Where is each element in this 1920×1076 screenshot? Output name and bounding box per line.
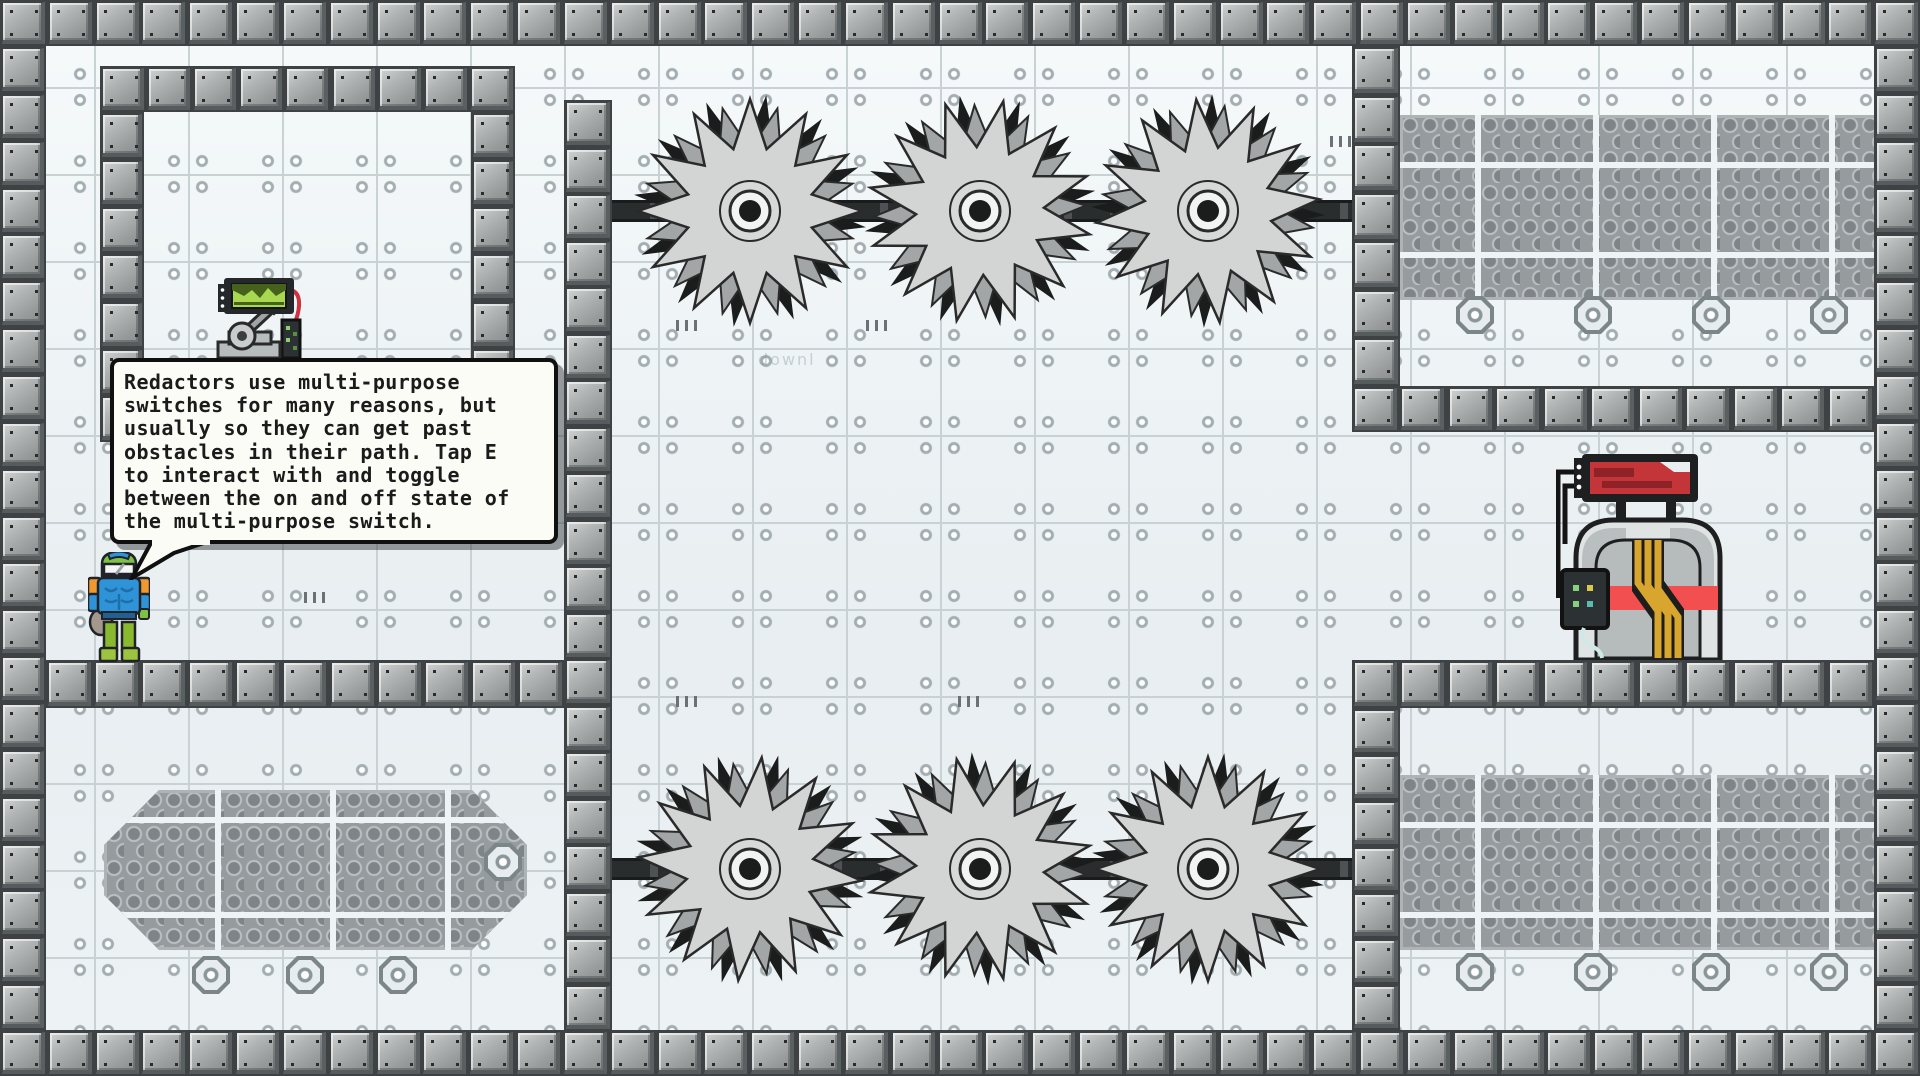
wall-block	[2, 798, 44, 841]
vent-grid-line	[1400, 822, 1920, 828]
wall-block	[845, 1032, 888, 1074]
wall-block	[1547, 1032, 1590, 1074]
wall-block	[566, 102, 610, 145]
wall-block	[240, 68, 282, 110]
wall-block	[473, 114, 513, 157]
wall-block	[1876, 329, 1918, 372]
wall-block	[333, 68, 375, 110]
wall-block	[2, 1032, 45, 1074]
wall-block	[2, 423, 44, 466]
wall-block	[1496, 388, 1539, 430]
wall-block	[1401, 388, 1444, 430]
wall-block	[517, 1032, 560, 1074]
wall-block	[1591, 388, 1634, 430]
vent-grid-line	[104, 912, 527, 918]
wall-block	[148, 68, 190, 110]
wall-block	[96, 2, 139, 44]
wall-block	[1876, 48, 1918, 91]
wall-block	[102, 114, 142, 157]
wall-block	[471, 68, 513, 110]
wall-block	[470, 1032, 513, 1074]
wall-segment	[0, 0, 1920, 46]
wall-block	[1875, 1032, 1918, 1074]
wall-block	[566, 939, 610, 982]
vent-grid-line	[1593, 775, 1599, 950]
wall-block	[95, 662, 138, 706]
wall-block	[1173, 1032, 1216, 1074]
wall-segment	[1352, 46, 1400, 386]
wall-block	[1079, 1032, 1122, 1074]
wall-block	[236, 1032, 279, 1074]
wall-block	[1354, 710, 1398, 752]
tutorial-bubble: Redactors use multi-purpose switches for…	[110, 358, 558, 544]
wall-block	[1876, 189, 1918, 232]
vent-grid-line	[1829, 115, 1835, 300]
wall-block	[1876, 657, 1918, 700]
wall-block	[517, 2, 560, 44]
vent-grid-line	[1400, 162, 1920, 168]
wall-block	[611, 2, 654, 44]
wall-block	[96, 1032, 139, 1074]
wall-block	[330, 2, 373, 44]
wall-block	[2, 282, 44, 325]
wall-block	[566, 381, 610, 424]
vent-grid-line	[1593, 115, 1599, 300]
wall-block	[1126, 2, 1169, 44]
wall-block	[331, 662, 374, 706]
wall-block	[566, 800, 610, 843]
vent-grid-line	[1829, 775, 1835, 950]
wall-block	[1360, 2, 1403, 44]
wall-block	[566, 521, 610, 564]
saw-blade	[860, 749, 1100, 993]
wall-segment	[1352, 386, 1874, 432]
wall-block	[611, 1032, 654, 1074]
wall-block	[1354, 802, 1398, 844]
wall-block	[1173, 2, 1216, 44]
hex-vent-panel	[1400, 115, 1920, 300]
wall-block	[564, 2, 607, 44]
wall-block	[566, 567, 610, 610]
wall-block	[1876, 798, 1918, 841]
wall-block	[2, 985, 44, 1028]
octagon-bolt	[1574, 296, 1612, 334]
wall-block	[1876, 282, 1918, 325]
wall-segment	[1352, 708, 1400, 1030]
wall-block	[1876, 95, 1918, 138]
wall-block	[704, 1032, 747, 1074]
wall-block	[2, 563, 44, 606]
wall-block	[470, 2, 513, 44]
wall-segment	[1352, 660, 1874, 708]
wall-block	[1688, 1032, 1731, 1074]
wall-block	[2, 610, 44, 653]
wall-block	[2, 517, 44, 560]
wall-block	[566, 195, 610, 238]
vent-grid-line	[1475, 775, 1481, 950]
wall-block	[194, 68, 236, 110]
saw-blade	[630, 91, 870, 335]
wall-block	[1734, 662, 1777, 706]
wall-block	[1876, 985, 1918, 1028]
wall-block	[283, 662, 326, 706]
wall-segment	[0, 1030, 1920, 1076]
wall-block	[658, 1032, 701, 1074]
wall-block	[1220, 1032, 1263, 1074]
wall-segment	[564, 100, 612, 1030]
wall-block	[2, 48, 44, 91]
wall-block	[1354, 848, 1398, 890]
vent-grid-line	[104, 817, 527, 823]
wall-block	[423, 1032, 466, 1074]
wall-block	[236, 2, 279, 44]
octagon-bolt	[1456, 296, 1494, 334]
octagon-bolt	[1692, 953, 1730, 991]
wall-block	[1496, 662, 1539, 706]
wall-block	[49, 1032, 92, 1074]
wall-block	[2, 189, 44, 232]
wall-block	[49, 2, 92, 44]
wall-block	[102, 255, 142, 298]
wall-block	[2, 2, 45, 44]
wall-block	[1407, 1032, 1450, 1074]
wall-block	[566, 474, 610, 517]
wall-block	[1594, 1032, 1637, 1074]
wall-block	[1032, 1032, 1075, 1074]
wall-block	[102, 208, 142, 251]
wall-block	[102, 161, 142, 204]
wall-block	[1641, 2, 1684, 44]
wall-block	[751, 1032, 794, 1074]
wall-block	[377, 2, 420, 44]
game-scene: downl	[0, 0, 1920, 1076]
wall-block	[566, 893, 610, 936]
wall-block	[566, 846, 610, 889]
wall-block	[1354, 97, 1398, 142]
wall-block	[1875, 2, 1918, 44]
wall-block	[566, 288, 610, 331]
wall-block	[2, 657, 44, 700]
wall-block	[658, 2, 701, 44]
wall-block	[1354, 339, 1398, 384]
wall-block	[1266, 2, 1309, 44]
wall-block	[1641, 1032, 1684, 1074]
wall-block	[1639, 388, 1682, 430]
wall-block	[1454, 1032, 1497, 1074]
wall-block	[566, 660, 610, 703]
wall-block	[142, 1032, 185, 1074]
octagon-bolt	[484, 843, 522, 881]
tutorial-text: Redactors use multi-purpose switches for…	[124, 371, 546, 533]
wall-block	[102, 68, 144, 110]
wall-block	[1828, 1032, 1871, 1074]
wall-block	[566, 753, 610, 796]
vent-grid-line	[1475, 115, 1481, 300]
console-control-box	[1562, 570, 1608, 628]
octagon-bolt	[192, 956, 230, 994]
wall-block	[1354, 986, 1398, 1028]
wall-block	[1354, 662, 1397, 706]
wall-block	[1501, 1032, 1544, 1074]
vent-grid-line	[1400, 252, 1920, 258]
wall-block	[1591, 662, 1634, 706]
wall-block	[2, 376, 44, 419]
wall-block	[1354, 291, 1398, 336]
wall-block	[2, 845, 44, 888]
wall-segment	[0, 46, 46, 1030]
wall-block	[423, 2, 466, 44]
wall-block	[1782, 1032, 1825, 1074]
wired-console	[1556, 448, 1740, 664]
wall-block	[1828, 2, 1871, 44]
wall-block	[102, 303, 142, 346]
wall-block	[1313, 2, 1356, 44]
wall-block	[283, 1032, 326, 1074]
switch-panel-box	[282, 320, 300, 358]
wall-block	[1354, 388, 1397, 430]
wall-block	[473, 255, 513, 298]
wall-block	[1686, 662, 1729, 706]
wall-block	[939, 2, 982, 44]
wall-block	[1876, 423, 1918, 466]
saw-blade	[1088, 91, 1328, 335]
wall-block	[1876, 470, 1918, 513]
wall-block	[1079, 2, 1122, 44]
wall-block	[1449, 662, 1492, 706]
wall-block	[1639, 662, 1682, 706]
wall-block	[1032, 2, 1075, 44]
wall-block	[1266, 1032, 1309, 1074]
wall-block	[1876, 610, 1918, 653]
wall-block	[1781, 662, 1824, 706]
wall-block	[2, 751, 44, 794]
tutorial-bubble-tail	[122, 540, 214, 580]
multi-purpose-switch[interactable]	[216, 278, 306, 364]
wall-block	[939, 1032, 982, 1074]
wall-block	[473, 303, 513, 346]
wall-block	[566, 242, 610, 285]
wall-block	[566, 428, 610, 471]
wall-block	[189, 1032, 232, 1074]
wall-block	[1876, 235, 1918, 278]
wall-block	[1782, 2, 1825, 44]
vent-grid-line	[1400, 912, 1920, 918]
wall-block	[2, 142, 44, 185]
wall-block	[1876, 376, 1918, 419]
wall-block	[751, 2, 794, 44]
wall-block	[564, 1032, 607, 1074]
wall-block	[1544, 388, 1587, 430]
wall-block	[1354, 194, 1398, 239]
wall-block	[985, 1032, 1028, 1074]
octagon-bolt	[1692, 296, 1730, 334]
octagon-bolt	[286, 956, 324, 994]
vent-ticks	[304, 592, 326, 603]
wall-block	[1876, 751, 1918, 794]
wall-block	[566, 149, 610, 192]
wall-block	[1313, 1032, 1356, 1074]
wall-block	[425, 662, 468, 706]
wall-block	[1454, 2, 1497, 44]
wall-block	[473, 208, 513, 251]
wall-block	[1876, 845, 1918, 888]
vent-grid-line	[445, 790, 451, 950]
wall-block	[1544, 662, 1587, 706]
wall-block	[566, 986, 610, 1029]
watermark: downl	[758, 350, 816, 369]
wall-block	[985, 2, 1028, 44]
wall-segment	[1874, 46, 1920, 1030]
wall-block	[1876, 938, 1918, 981]
wall-block	[378, 662, 421, 706]
wall-block	[1876, 142, 1918, 185]
wall-block	[1360, 1032, 1403, 1074]
octagon-bolt	[379, 956, 417, 994]
wall-block	[2, 95, 44, 138]
wall-block	[1735, 1032, 1778, 1074]
wall-block	[1407, 2, 1450, 44]
hex-vent-panel	[1400, 775, 1920, 950]
wall-block	[892, 2, 935, 44]
wall-block	[1686, 388, 1729, 430]
wall-block	[1781, 388, 1824, 430]
vent-ticks	[1330, 136, 1352, 147]
wall-block	[330, 1032, 373, 1074]
wall-block	[566, 707, 610, 750]
vent-grid-line	[215, 790, 221, 950]
wall-block	[1735, 2, 1778, 44]
wall-block	[704, 2, 747, 44]
wall-block	[48, 662, 91, 706]
wall-block	[283, 2, 326, 44]
wall-block	[236, 662, 279, 706]
wall-block	[1220, 2, 1263, 44]
wall-block	[2, 891, 44, 934]
wall-block	[1354, 242, 1398, 287]
wall-block	[189, 2, 232, 44]
vent-ticks	[958, 696, 980, 707]
wall-block	[377, 1032, 420, 1074]
wall-block	[1401, 662, 1444, 706]
vent-grid-line	[1711, 115, 1717, 300]
wall-block	[142, 2, 185, 44]
vent-grid-line	[1711, 775, 1717, 950]
wall-block	[189, 662, 232, 706]
wall-block	[1449, 388, 1492, 430]
wall-block	[798, 2, 841, 44]
saw-blade	[630, 749, 870, 993]
wall-block	[1876, 704, 1918, 747]
wall-block	[2, 470, 44, 513]
wall-block	[2, 329, 44, 372]
wall-block	[519, 662, 562, 706]
wall-block	[1876, 891, 1918, 934]
wall-block	[1734, 388, 1777, 430]
wall-block	[1354, 145, 1398, 190]
wall-block	[566, 614, 610, 657]
wall-block	[1354, 940, 1398, 982]
octagon-bolt	[1456, 953, 1494, 991]
wall-block	[1354, 894, 1398, 936]
wall-block	[1594, 2, 1637, 44]
wall-block	[845, 2, 888, 44]
wall-block	[379, 68, 421, 110]
wall-block	[1547, 2, 1590, 44]
hex-vent-panel	[104, 790, 527, 950]
octagon-bolt	[1810, 953, 1848, 991]
wall-block	[1876, 517, 1918, 560]
wall-segment	[100, 66, 515, 112]
octagon-bolt	[1810, 296, 1848, 334]
wall-block	[1829, 662, 1872, 706]
vent-grid-line	[330, 790, 336, 950]
wall-block	[1126, 1032, 1169, 1074]
wall-block	[892, 1032, 935, 1074]
wall-block	[1501, 2, 1544, 44]
wall-block	[2, 938, 44, 981]
saw-blade	[860, 91, 1100, 335]
wall-segment	[46, 660, 564, 708]
wall-block	[286, 68, 328, 110]
wall-block	[2, 704, 44, 747]
wall-block	[472, 662, 515, 706]
vent-ticks	[676, 696, 698, 707]
wall-block	[1354, 48, 1398, 93]
wall-block	[1354, 756, 1398, 798]
wall-block	[142, 662, 185, 706]
saw-blade	[1088, 749, 1328, 993]
wall-block	[1876, 563, 1918, 606]
wall-block	[2, 235, 44, 278]
wall-block	[798, 1032, 841, 1074]
wall-block	[1688, 2, 1731, 44]
wall-block	[425, 68, 467, 110]
wall-block	[1829, 388, 1872, 430]
wall-block	[566, 335, 610, 378]
wall-block	[473, 161, 513, 204]
octagon-bolt	[1574, 953, 1612, 991]
